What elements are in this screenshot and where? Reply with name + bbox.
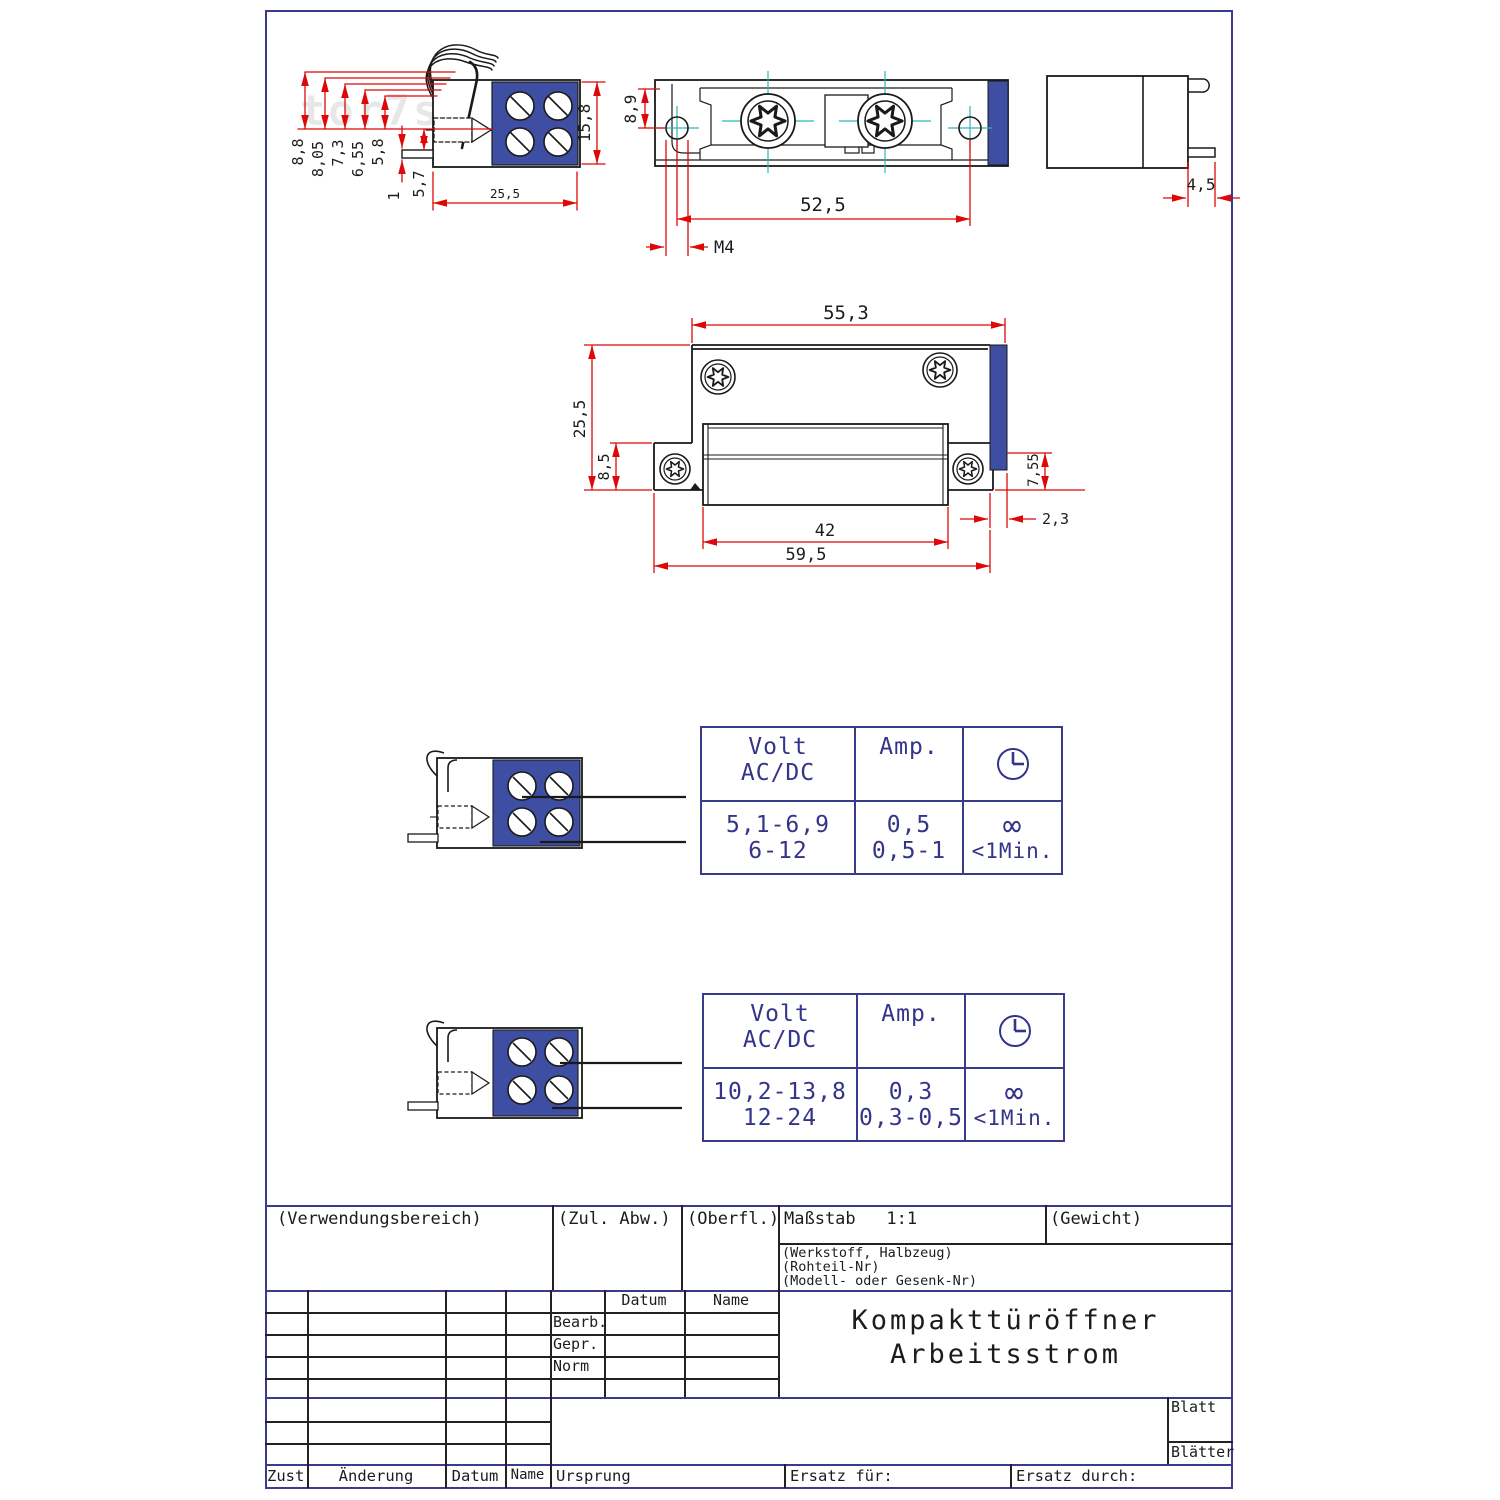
field-gewicht: (Gewicht) bbox=[1050, 1211, 1142, 1229]
sheet-frame bbox=[265, 10, 1233, 1489]
field-oberfl: (Oberfl.) bbox=[687, 1211, 779, 1229]
field-modell: (Modell- oder Gesenk-Nr) bbox=[782, 1274, 977, 1288]
field-massstab: Maßstab 1:1 bbox=[784, 1211, 917, 1229]
col-name: Name bbox=[684, 1293, 778, 1309]
field-zul-abw: (Zul. Abw.) bbox=[558, 1211, 671, 1229]
drawing-sheet: tor7s bbox=[0, 0, 1500, 1500]
field-zust: Zust bbox=[267, 1468, 304, 1484]
drawing-title-line1: Kompakttüröffner bbox=[778, 1307, 1233, 1335]
row-norm: Norm bbox=[553, 1359, 589, 1375]
field-verwendungsbereich: (Verwendungsbereich) bbox=[277, 1211, 482, 1229]
row-bearb: Bearb. bbox=[553, 1315, 607, 1331]
field-blaetter: Blätter bbox=[1171, 1445, 1234, 1461]
field-datum-bottom: Datum bbox=[445, 1468, 505, 1484]
field-ursprung: Ursprung bbox=[556, 1468, 631, 1484]
field-blatt: Blatt bbox=[1171, 1400, 1216, 1416]
row-gepr: Gepr. bbox=[553, 1337, 598, 1353]
field-aenderung: Änderung bbox=[307, 1468, 445, 1484]
col-datum: Datum bbox=[604, 1293, 684, 1309]
field-name-bottom: Name bbox=[505, 1468, 550, 1483]
field-ersatz-durch: Ersatz durch: bbox=[1016, 1468, 1137, 1484]
drawing-title-line2: Arbeitsstrom bbox=[778, 1341, 1233, 1369]
field-ersatz-fuer: Ersatz für: bbox=[790, 1468, 893, 1484]
